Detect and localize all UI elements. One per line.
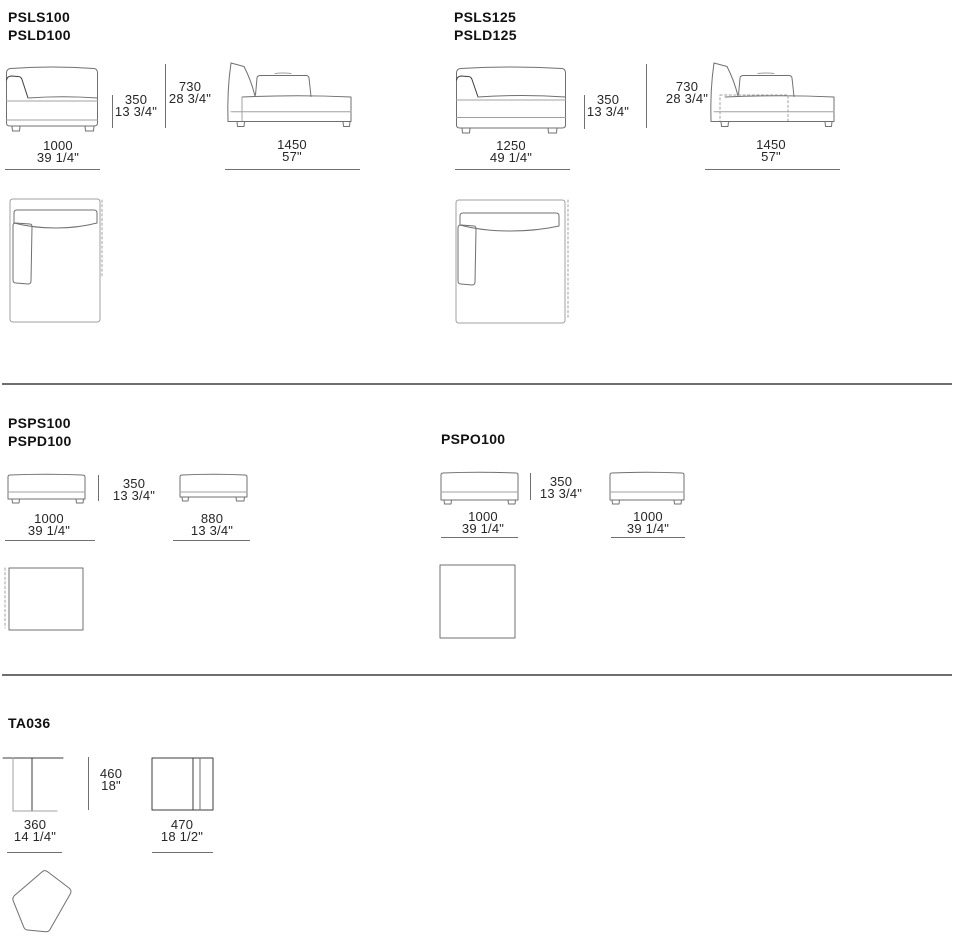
model-codes-psp100: PSPS100 PSPD100 — [8, 414, 72, 450]
bench-front-drawing — [609, 471, 687, 505]
module-top-view-drawing — [6, 195, 108, 327]
bench-front-drawing — [440, 471, 520, 505]
dim-chaise-length: 1450 57" — [736, 139, 806, 162]
dim-line-chaise-length — [705, 169, 840, 170]
dim-line-table-depth — [152, 852, 213, 853]
dim-bench-height: 350 13 3/4" — [99, 478, 169, 501]
dim-in: 13 3/4" — [177, 525, 247, 537]
dim-line-bench-width — [173, 540, 250, 541]
model-code: PSLS100 — [8, 8, 71, 26]
dim-in: 49 1/4" — [476, 152, 546, 164]
model-code: PSPD100 — [8, 432, 72, 450]
dim-in: 39 1/4" — [23, 152, 93, 164]
model-code: PSLD125 — [454, 26, 517, 44]
side-table-front-drawing — [151, 756, 215, 814]
table-top-view-drawing — [8, 862, 76, 936]
dim-in: 39 1/4" — [14, 525, 84, 537]
dim-in: 28 3/4" — [155, 93, 225, 105]
dim-line-chaise-length — [225, 169, 360, 170]
dim-chaise-length: 1450 57" — [257, 139, 327, 162]
section-divider — [2, 674, 952, 676]
spec-sheet: PSLS100 PSLD100 350 13 3/4" 730 28 3/4" … — [0, 0, 954, 938]
dim-bench-width: 1000 39 1/4" — [613, 511, 683, 534]
dim-table-depth: 470 18 1/2" — [147, 819, 217, 842]
dim-in: 39 1/4" — [613, 523, 683, 535]
dim-bench-height: 350 13 3/4" — [526, 476, 596, 499]
dim-line-bench-width — [441, 537, 518, 538]
dim-bench-width: 1000 39 1/4" — [448, 511, 518, 534]
model-code: PSPS100 — [8, 414, 72, 432]
dim-line-bench-width — [611, 537, 685, 538]
dim-line-bench-width — [5, 540, 95, 541]
dim-line-module-width — [455, 169, 570, 170]
dim-in: 13 3/4" — [526, 488, 596, 500]
model-codes-pspo100: PSPO100 — [441, 430, 505, 448]
dim-line-table-width — [7, 852, 62, 853]
dim-in: 18" — [76, 780, 146, 792]
model-code: PSPO100 — [441, 430, 505, 448]
dim-module-width: 1250 49 1/4" — [476, 140, 546, 163]
model-codes-ta036: TA036 — [8, 714, 50, 732]
dim-bench-width: 1000 39 1/4" — [14, 513, 84, 536]
dim-in: 57" — [257, 151, 327, 163]
dim-line-module-width — [5, 169, 100, 170]
dim-in: 57" — [736, 151, 806, 163]
model-code: PSLS125 — [454, 8, 517, 26]
model-codes-psl125: PSLS125 PSLD125 — [454, 8, 517, 44]
dim-in: 39 1/4" — [448, 523, 518, 535]
bench-front-drawing — [7, 473, 87, 505]
bench-top-view-drawing — [3, 562, 89, 634]
model-code: PSLD100 — [8, 26, 71, 44]
dim-bench-width: 880 13 3/4" — [177, 513, 247, 536]
chaise-side-drawing — [706, 60, 843, 133]
bench-top-view-drawing — [438, 563, 520, 641]
dim-table-width: 360 14 1/4" — [0, 819, 70, 842]
dim-in: 14 1/4" — [0, 831, 70, 843]
dim-total-height: 730 28 3/4" — [155, 81, 225, 104]
module-top-view-drawing — [452, 196, 574, 326]
dim-seat-height: 350 13 3/4" — [573, 94, 643, 117]
side-table-profile-drawing — [2, 756, 66, 816]
dim-table-height: 460 18" — [76, 768, 146, 791]
dim-in: 13 3/4" — [573, 106, 643, 118]
dim-in: 18 1/2" — [147, 831, 217, 843]
dim-in: 13 3/4" — [101, 106, 171, 118]
model-code: TA036 — [8, 714, 50, 732]
dim-in: 13 3/4" — [99, 490, 169, 502]
section-divider — [2, 383, 952, 385]
sofa-module-front-drawing — [455, 64, 569, 134]
chaise-side-drawing — [223, 60, 360, 133]
dim-line-total-height — [646, 64, 647, 128]
sofa-module-front-drawing — [5, 64, 101, 134]
model-codes-psl100: PSLS100 PSLD100 — [8, 8, 71, 44]
bench-front-drawing — [179, 473, 249, 503]
dim-module-width: 1000 39 1/4" — [23, 140, 93, 163]
